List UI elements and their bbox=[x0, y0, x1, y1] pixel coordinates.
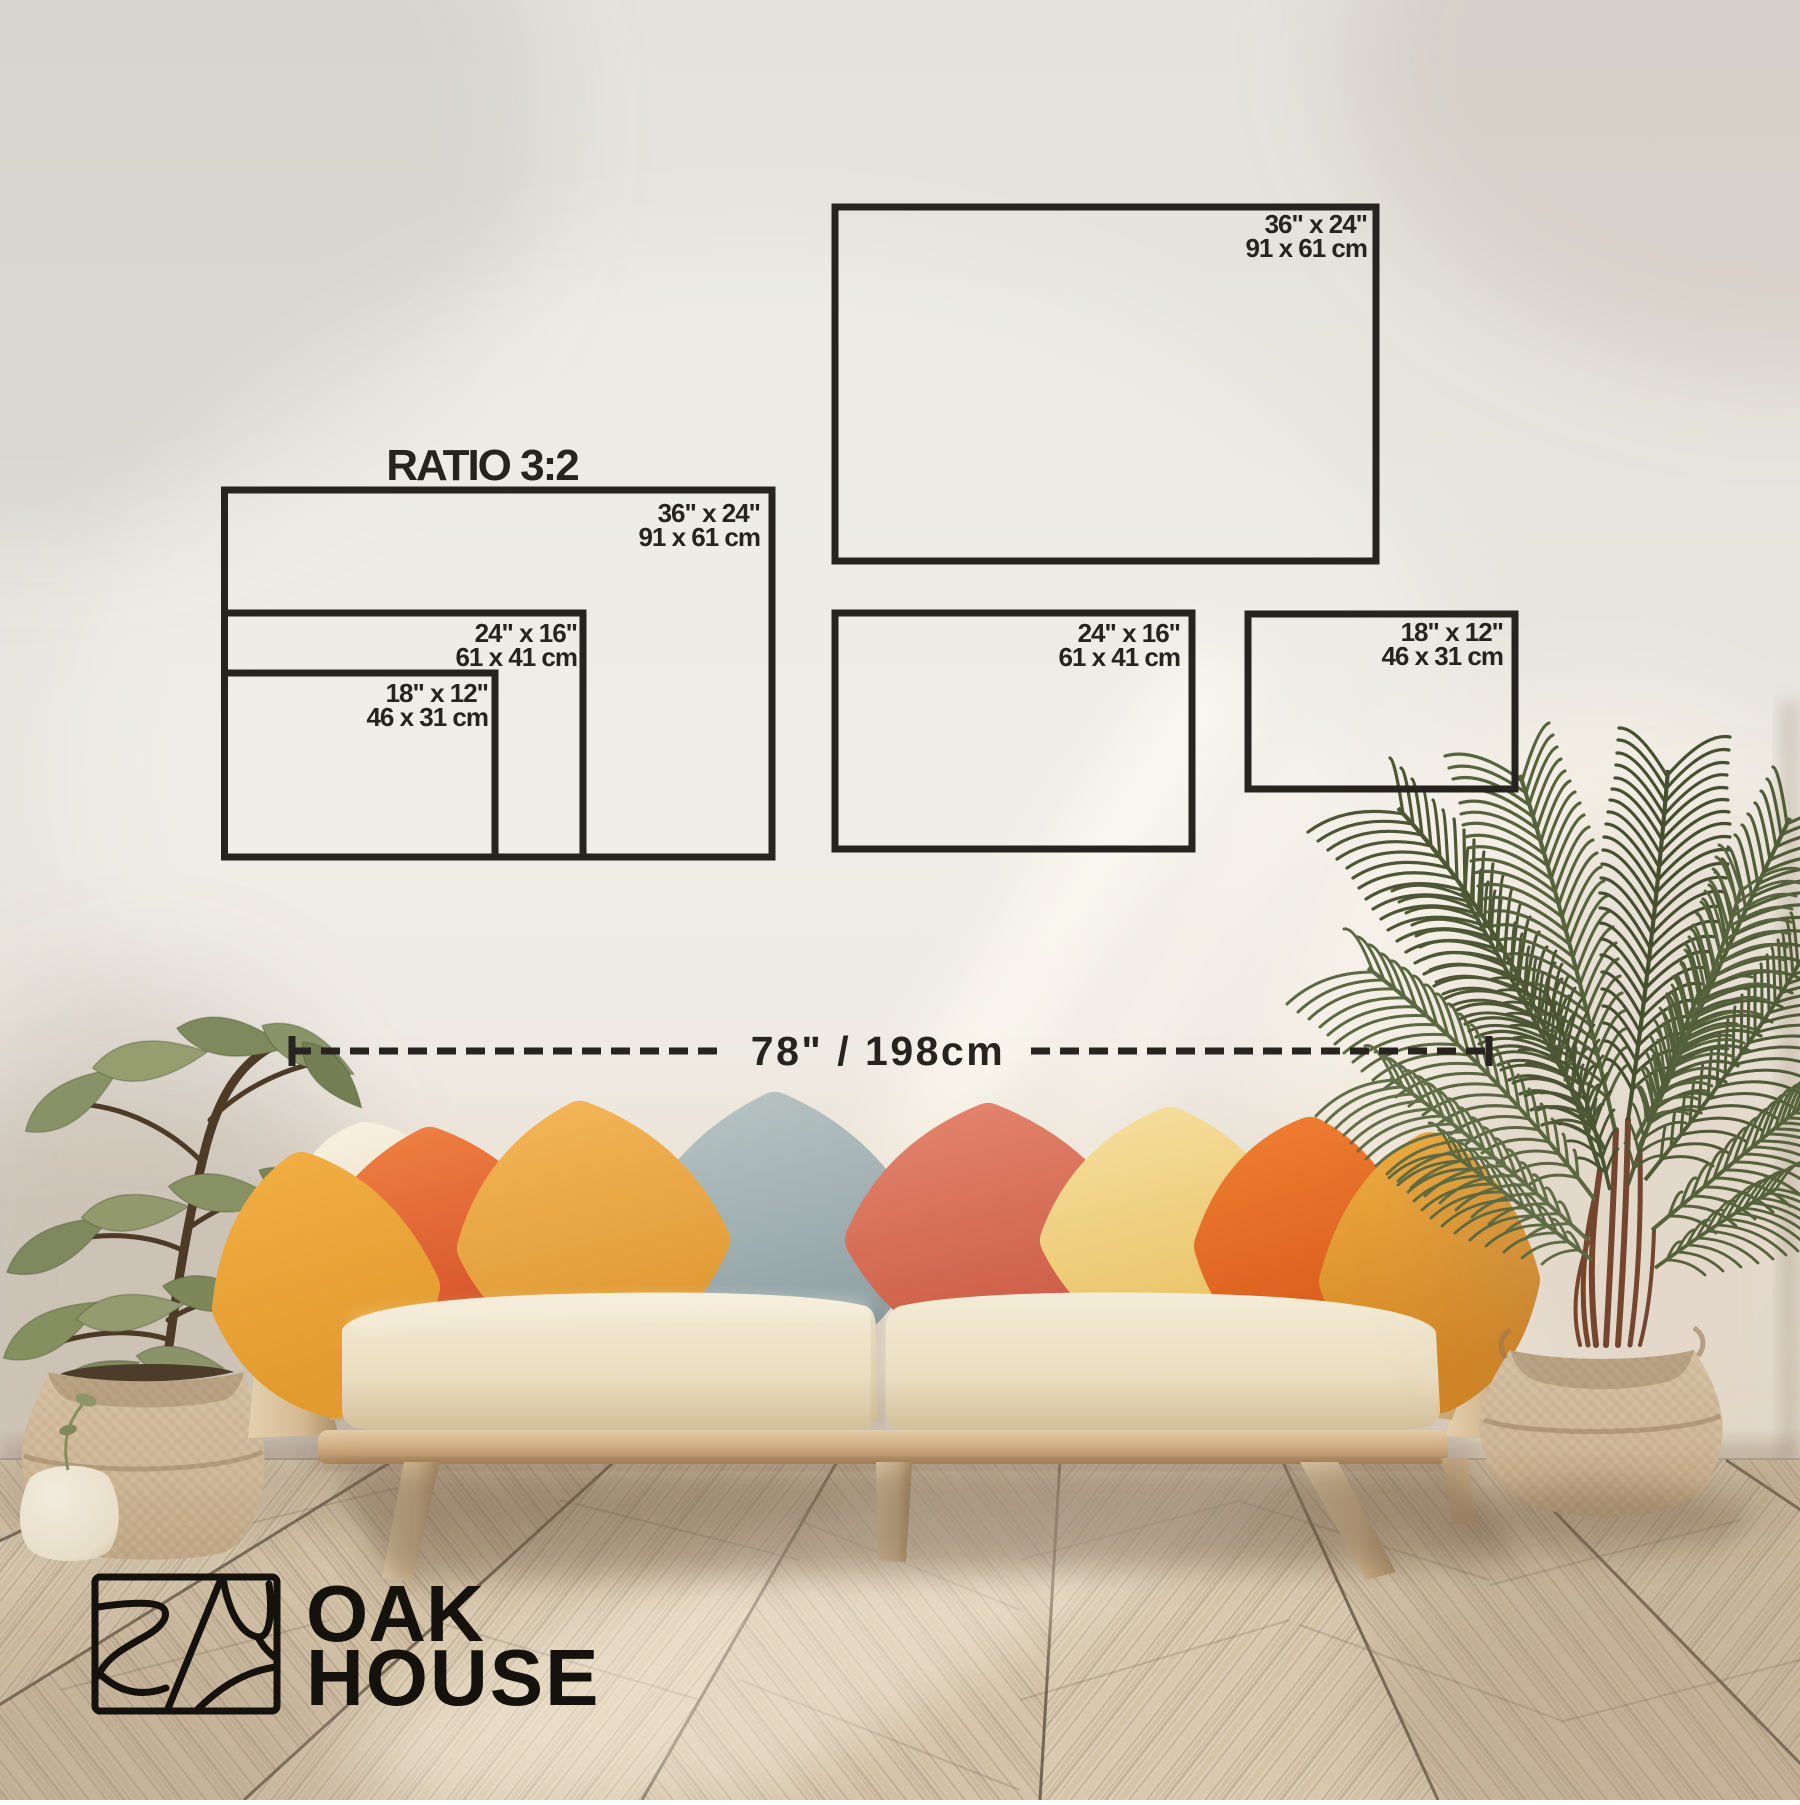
svg-text:78" / 198cm: 78" / 198cm bbox=[751, 1028, 1005, 1074]
svg-text:46 x 31 cm: 46 x 31 cm bbox=[1381, 641, 1503, 671]
svg-text:61 x 41 cm: 61 x 41 cm bbox=[1058, 642, 1180, 672]
svg-text:46 x 31 cm: 46 x 31 cm bbox=[366, 702, 488, 732]
svg-text:91 x 61 cm: 91 x 61 cm bbox=[638, 522, 760, 552]
svg-text:91 x 61 cm: 91 x 61 cm bbox=[1245, 233, 1367, 263]
svg-text:HOUSE: HOUSE bbox=[306, 1633, 601, 1722]
svg-text:61 x 41 cm: 61 x 41 cm bbox=[455, 642, 577, 672]
svg-text:RATIO 3:2: RATIO 3:2 bbox=[386, 441, 578, 490]
